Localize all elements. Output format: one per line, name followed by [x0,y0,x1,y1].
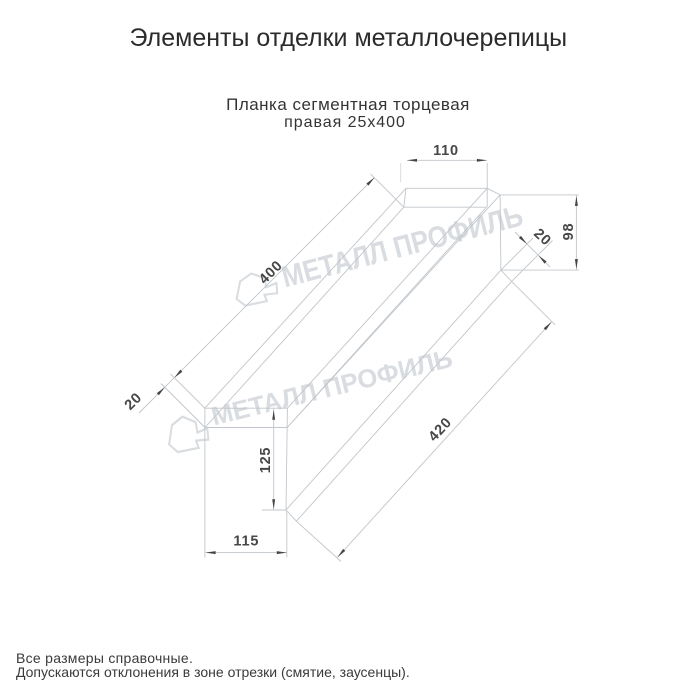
svg-text:98: 98 [561,223,577,241]
svg-text:125: 125 [258,447,274,474]
svg-text:МЕТАЛЛ ПРОФИЛЬ: МЕТАЛЛ ПРОФИЛЬ [278,199,526,294]
svg-text:20: 20 [530,226,554,250]
svg-text:МЕТАЛЛ ПРОФИЛЬ: МЕТАЛЛ ПРОФИЛЬ [209,345,456,432]
svg-text:420: 420 [426,415,456,445]
svg-text:110: 110 [433,143,459,159]
svg-text:115: 115 [233,534,259,550]
